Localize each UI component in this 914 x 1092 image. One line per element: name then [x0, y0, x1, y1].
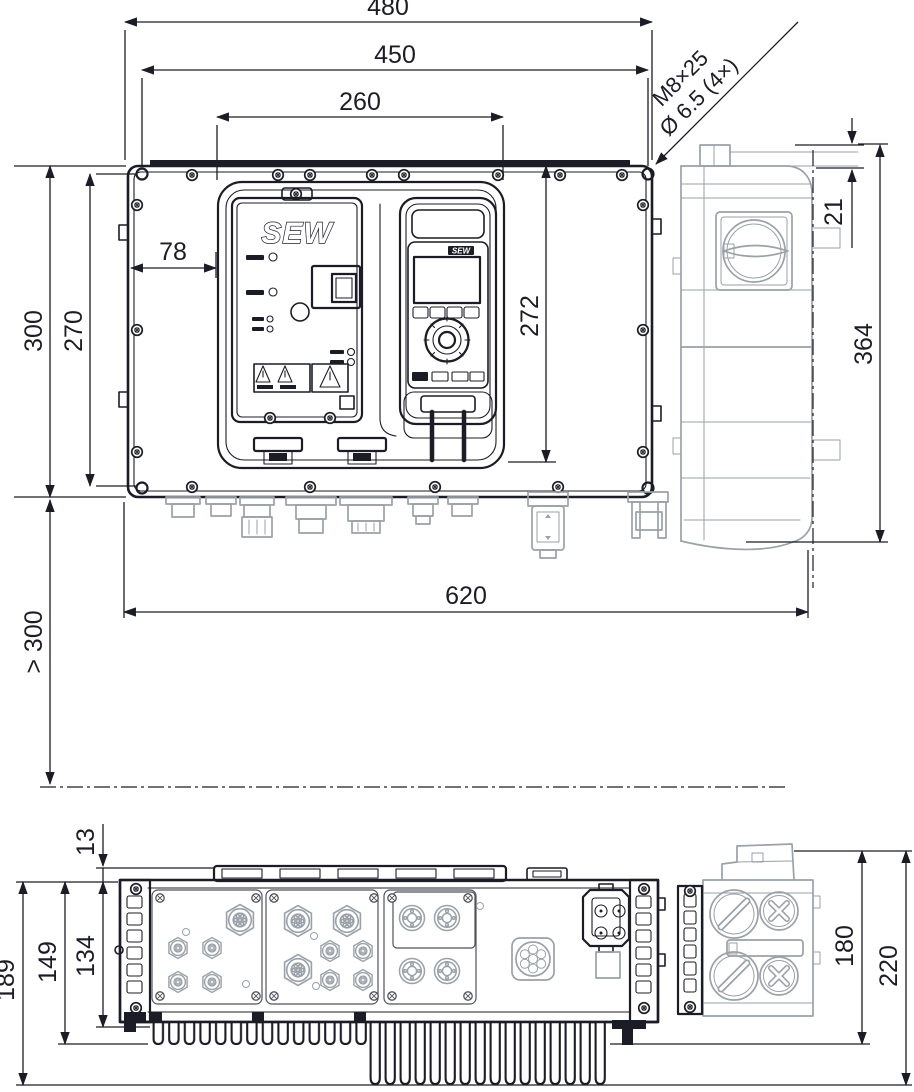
nameplate [340, 396, 354, 409]
dimension-13: 13 [16, 824, 214, 882]
dim-label: 450 [374, 41, 416, 69]
dim-label: 78 [159, 238, 187, 266]
power-connector [583, 884, 629, 978]
dimension-450: 450 [142, 41, 648, 166]
housing-screws [132, 170, 649, 493]
dim-label: 13 [72, 828, 100, 856]
dimension-480: 480 [125, 0, 652, 160]
switch-module-bottom [703, 844, 820, 1016]
status-leds [246, 253, 277, 332]
dimension-78: 78 [131, 238, 216, 278]
dim-label: 300 [20, 310, 48, 352]
front-housing [119, 160, 661, 497]
dim-label: 134 [72, 935, 100, 977]
dim-label: 21 [820, 198, 848, 226]
bolt-note: M8×25 Ø 6.5 (4×) [636, 22, 798, 164]
dimension-189: 189 [0, 882, 23, 1085]
blind-plug [291, 303, 309, 321]
front-view: SEW [119, 160, 668, 558]
dim-label: 480 [367, 0, 409, 21]
dimension-270: 270 [60, 174, 136, 486]
fan-connector [512, 938, 554, 980]
keypad-display [414, 257, 480, 303]
dim-label: 272 [516, 295, 544, 337]
dim-label: 364 [850, 323, 878, 365]
right-end-cap [630, 880, 665, 1022]
keypad-top-cap [412, 210, 484, 238]
mounting-hole [137, 169, 148, 180]
heatsink-fins-long [368, 1023, 608, 1086]
keypad-logo: SEW [452, 247, 472, 256]
dim-label: 180 [831, 925, 859, 967]
keypad-function-keys [413, 307, 479, 318]
keypad: SEW [400, 198, 496, 460]
bottom-connectors [166, 492, 668, 558]
dim-label: > 300 [20, 610, 48, 673]
mounting-bracket [628, 492, 668, 538]
keypad-bottom-keys [412, 372, 484, 381]
dim-label: 149 [34, 941, 62, 983]
sew-logo: SEW [261, 217, 334, 250]
dim-label: 260 [339, 88, 381, 116]
dim-label: 620 [445, 582, 487, 610]
left-foot [124, 1012, 146, 1032]
keypad-nav-wheel [424, 316, 470, 364]
right-foot [612, 1020, 646, 1045]
power-plug [528, 492, 568, 558]
bottom-view [115, 844, 820, 1086]
left-end-cap [115, 880, 150, 1022]
connector-panels [152, 884, 629, 1004]
dimension-clearance: > 300 [20, 500, 788, 787]
heatsink [120, 1012, 658, 1086]
inverter-module: SEW [232, 188, 362, 423]
mounting-holes [137, 169, 654, 494]
warning-labels [254, 364, 348, 392]
dimension-272: 272 [508, 166, 556, 462]
dim-label: 220 [875, 945, 903, 987]
rotary-disconnect-switch [716, 212, 792, 290]
dim-label: 270 [60, 310, 88, 352]
mounting-hole [137, 483, 148, 494]
din-rail-edge [678, 886, 702, 1014]
switch-leds [330, 349, 355, 366]
dimension-drawing: SEW [0, 0, 914, 1092]
keypad-clip [404, 392, 492, 460]
dimension-364: 364 [746, 144, 888, 542]
service-switch [312, 266, 360, 308]
dimension-620: 620 [124, 502, 808, 618]
dim-label: 189 [0, 959, 20, 1001]
heatsink-fins-short [151, 1023, 368, 1046]
